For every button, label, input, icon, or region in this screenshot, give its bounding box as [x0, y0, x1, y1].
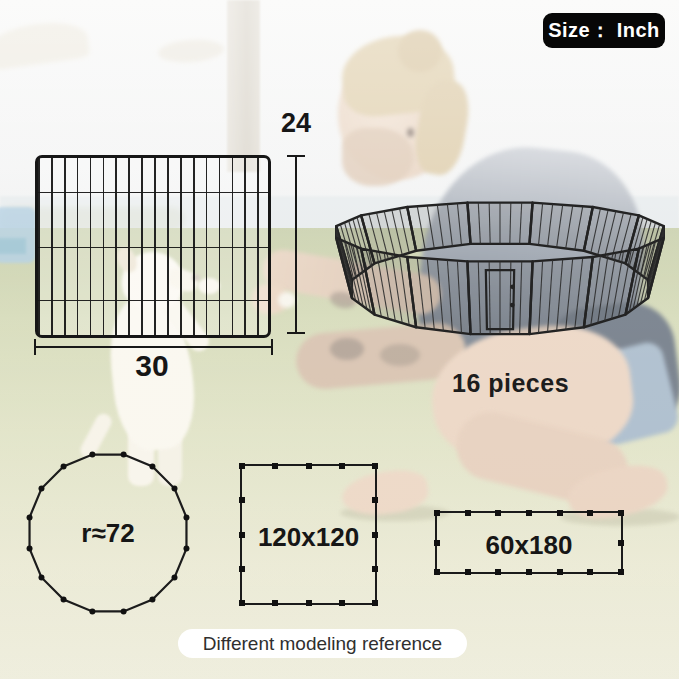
- size-unit-badge: Size： Inch: [543, 13, 665, 48]
- panel-joint-dot: [618, 569, 624, 575]
- panel-joint-dot: [372, 600, 378, 606]
- circle-radius-label: r≈72: [22, 518, 194, 549]
- dimension-tick: [271, 339, 273, 355]
- square-dimension-label: 120x120: [258, 516, 359, 553]
- panel-joint-dot: [239, 600, 245, 606]
- panel-joint-dot: [434, 569, 440, 575]
- panel-joint-dot: [618, 510, 624, 516]
- panel-joint-dot: [272, 463, 278, 469]
- dimension-tick: [287, 332, 305, 334]
- panel-joint-dot: [557, 569, 563, 575]
- panel-joint-dot: [306, 463, 312, 469]
- panel-joint-dot: [465, 569, 471, 575]
- height-dimension-line: [295, 156, 297, 333]
- circle-reference-shape: r≈72: [22, 446, 194, 620]
- width-dimension-label: 30: [116, 349, 188, 383]
- caption-pill: Different modeling reference: [178, 629, 467, 658]
- panel-grid-diagram: [35, 155, 271, 338]
- panel-crossbar: [38, 247, 268, 249]
- panel-joint-dot: [587, 510, 593, 516]
- dimension-tick: [34, 339, 36, 355]
- panel-joint-dot: [239, 566, 245, 572]
- panel-joint-dot: [434, 540, 440, 546]
- panel-joint-dot: [465, 510, 471, 516]
- panel-joint-dot: [239, 532, 245, 538]
- panel-joint-dot: [272, 600, 278, 606]
- rectangle-dimension-label: 60x180: [486, 524, 573, 561]
- width-dimension-line: [35, 346, 272, 348]
- panel-joint-dot: [495, 510, 501, 516]
- panel-joint-dot: [618, 540, 624, 546]
- square-reference-shape: 120x120: [240, 464, 377, 605]
- panel-joint-dot: [372, 497, 378, 503]
- panel-joint-dot: [434, 510, 440, 516]
- panel-joint-dot: [239, 497, 245, 503]
- panel-joint-dot: [587, 569, 593, 575]
- panel-crossbar: [38, 192, 268, 194]
- height-dimension-label: 24: [269, 108, 323, 139]
- panel-joint-dot: [526, 510, 532, 516]
- dimension-tick: [287, 155, 305, 157]
- panel-joint-dot: [239, 463, 245, 469]
- panel-joint-dot: [372, 463, 378, 469]
- pieces-count-label: 16 pieces: [452, 369, 569, 398]
- panel-joint-dot: [526, 569, 532, 575]
- panel-joint-dot: [372, 532, 378, 538]
- panel-crossbar: [38, 300, 268, 302]
- panel-joint-dot: [495, 569, 501, 575]
- panel-joint-dot: [372, 566, 378, 572]
- panel-joint-dot: [557, 510, 563, 516]
- panel-joint-dot: [339, 600, 345, 606]
- panel-joint-dot: [306, 600, 312, 606]
- panel-joint-dot: [339, 463, 345, 469]
- playpen-ring-photo: [325, 185, 675, 350]
- product-infographic: Size： Inch 30 24 16 pieces r≈72 120x120 …: [0, 0, 679, 679]
- rectangle-reference-shape: 60x180: [435, 511, 623, 574]
